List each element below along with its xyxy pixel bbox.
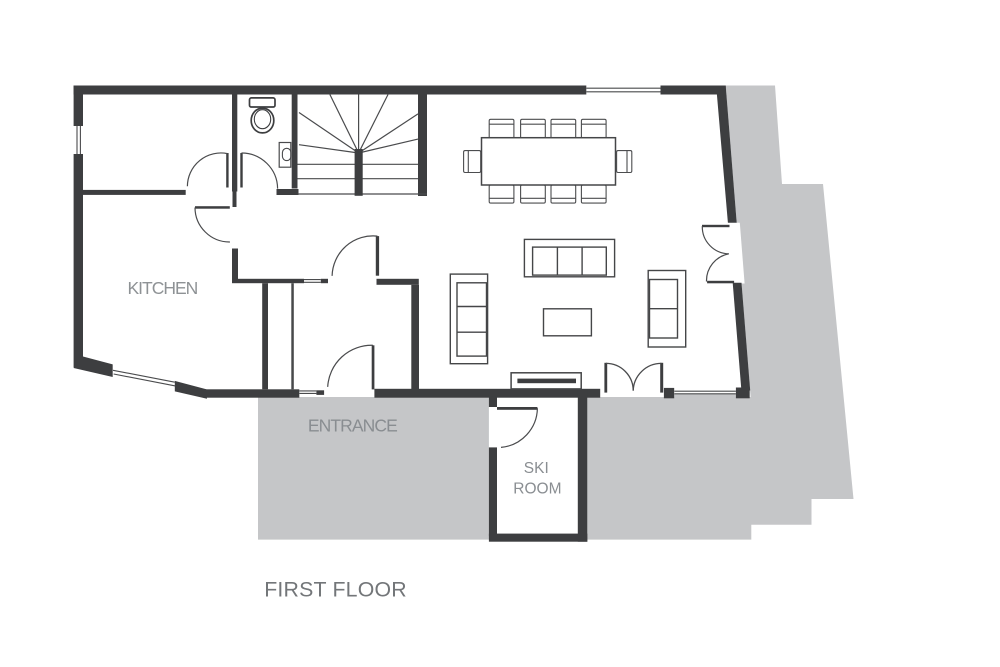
svg-text:SKI: SKI	[524, 460, 549, 477]
svg-text:FIRST FLOOR: FIRST FLOOR	[264, 577, 407, 601]
svg-text:KITCHEN: KITCHEN	[127, 278, 197, 298]
svg-text:ROOM: ROOM	[513, 480, 561, 497]
svg-text:ENTRANCE: ENTRANCE	[308, 416, 397, 436]
